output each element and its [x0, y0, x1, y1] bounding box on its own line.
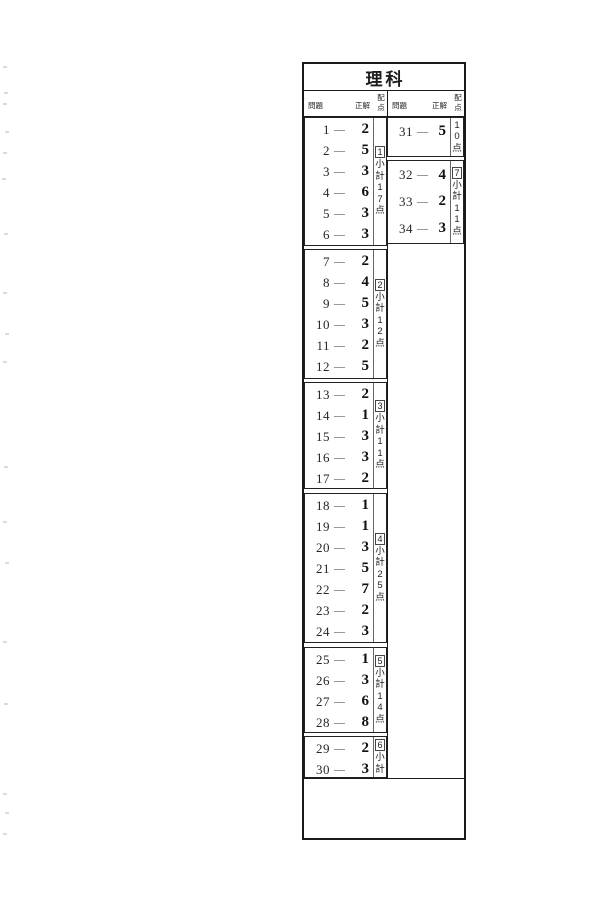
- subtotal-char: 2: [377, 569, 382, 581]
- section-number-box: 5: [375, 655, 385, 667]
- question-number: 18: [305, 498, 330, 514]
- dash-separator: —: [330, 277, 349, 289]
- dash-separator: —: [330, 410, 349, 422]
- answer-section: 7—28—49—510—311—212—52小計12点: [304, 249, 387, 379]
- question-number: 17: [305, 471, 330, 487]
- answer-row: 33—2: [388, 191, 450, 212]
- question-number: 22: [305, 582, 330, 598]
- answer-number: 5: [349, 560, 373, 577]
- answer-number: 2: [432, 193, 450, 210]
- subtotal-char: 点: [375, 459, 385, 471]
- answer-row: 28—8: [305, 712, 373, 733]
- subtotal-char: 計: [452, 191, 462, 203]
- question-number: 11: [305, 338, 330, 354]
- scan-artifact: [5, 333, 9, 335]
- dash-separator: —: [330, 654, 349, 666]
- answer-number: 3: [349, 226, 373, 243]
- answer-number: 3: [349, 428, 373, 445]
- question-number: 21: [305, 561, 330, 577]
- section-rows: 31—5: [388, 118, 450, 156]
- question-number: 2: [305, 143, 330, 159]
- answer-row: 24—3: [305, 621, 373, 642]
- answer-number: 2: [349, 121, 373, 138]
- answer-row: 17—2: [305, 468, 373, 489]
- subtotal-char: 計: [375, 764, 385, 776]
- question-number: 27: [305, 694, 330, 710]
- subtotal-char: 1: [454, 214, 459, 226]
- scan-artifact: [3, 833, 7, 835]
- dash-separator: —: [330, 361, 349, 373]
- answer-section: 29—230—36小計: [304, 736, 387, 778]
- answer-section: 1—22—53—34—65—36—31小計17点: [304, 117, 387, 246]
- answer-row: 7—2: [305, 251, 373, 272]
- dash-separator: —: [413, 169, 432, 181]
- subtotal-char: 小: [375, 413, 385, 425]
- subtotal-char: 点: [375, 338, 385, 350]
- scan-artifact: [4, 92, 8, 94]
- answer-row: 14—1: [305, 405, 373, 426]
- subtotal-char: 1: [377, 182, 382, 194]
- question-number: 3: [305, 164, 330, 180]
- empty-bottom-cell: [304, 778, 464, 838]
- scan-artifact: [5, 562, 9, 564]
- column-header-row: 問題 正解 配点 問題 正解 配点: [304, 91, 464, 117]
- answer-number: 3: [432, 220, 450, 237]
- dash-separator: —: [330, 563, 349, 575]
- table-title-row: 理科: [304, 64, 464, 91]
- section-rows: 29—230—3: [305, 737, 373, 777]
- subtotal-char: 計: [375, 679, 385, 691]
- scan-artifact: [3, 66, 7, 68]
- answer-number: 4: [349, 274, 373, 291]
- subtotal-char: 計: [375, 171, 385, 183]
- points-strip: 1小計17点: [373, 118, 386, 245]
- subtotal-char: 7: [377, 194, 382, 206]
- dash-separator: —: [330, 452, 349, 464]
- answer-section: 25—126—327—628—85小計14点: [304, 647, 387, 733]
- subtotal-char: 点: [375, 592, 385, 604]
- dash-separator: —: [330, 764, 349, 776]
- scan-artifact: [4, 703, 8, 705]
- subtotal-char: 1: [377, 691, 382, 703]
- dash-separator: —: [330, 187, 349, 199]
- section-number-box: 6: [375, 739, 385, 751]
- question-number: 19: [305, 519, 330, 535]
- dash-separator: —: [330, 675, 349, 687]
- answer-row: 29—2: [305, 738, 373, 759]
- dash-separator: —: [330, 389, 349, 401]
- section-number-box: 2: [375, 279, 385, 291]
- question-number: 28: [305, 715, 330, 731]
- answer-number: 6: [349, 693, 373, 710]
- dash-separator: —: [330, 431, 349, 443]
- question-number: 23: [305, 603, 330, 619]
- points-strip: 4小計25点: [373, 494, 386, 642]
- question-number: 7: [305, 254, 330, 270]
- answer-row: 18—1: [305, 495, 373, 516]
- dash-separator: —: [330, 743, 349, 755]
- dash-separator: —: [413, 196, 432, 208]
- question-number: 12: [305, 359, 330, 375]
- section-rows: 32—433—234—3: [388, 161, 450, 243]
- subtotal-char: 計: [375, 425, 385, 437]
- answer-number: 3: [349, 316, 373, 333]
- dash-separator: —: [330, 717, 349, 729]
- subject-title: 理科: [363, 65, 406, 90]
- answer-section: 13—214—115—316—317—23小計11点: [304, 382, 387, 489]
- answer-number: 6: [349, 184, 373, 201]
- points-strip: 5小計14点: [373, 648, 386, 732]
- subtotal-char: 点: [375, 205, 385, 217]
- scan-artifact: [4, 233, 8, 235]
- answer-number: 2: [349, 740, 373, 757]
- question-number: 25: [305, 652, 330, 668]
- question-col-header: 問題: [392, 100, 407, 111]
- answer-number: 1: [349, 497, 373, 514]
- question-number: 4: [305, 185, 330, 201]
- answer-key-table: 理科 問題 正解 配点 問題 正解 配点 1—22—53—34—65—36—31…: [302, 62, 466, 840]
- scan-artifact: [2, 178, 6, 180]
- subtotal-char: 計: [375, 557, 385, 569]
- header-left-half: 問題 正解 配点: [304, 91, 387, 116]
- question-number: 8: [305, 275, 330, 291]
- answer-number: 3: [349, 623, 373, 640]
- points-strip: 10点: [450, 118, 463, 156]
- dash-separator: —: [413, 223, 432, 235]
- section-rows: 18—119—120—321—522—723—224—3: [305, 494, 373, 642]
- dash-separator: —: [330, 696, 349, 708]
- answer-row: 20—3: [305, 537, 373, 558]
- section-rows: 7—28—49—510—311—212—5: [305, 250, 373, 378]
- answer-number: 7: [349, 581, 373, 598]
- answer-section: 31—510点: [387, 117, 464, 157]
- answer-number: 1: [349, 407, 373, 424]
- answer-number: 2: [349, 337, 373, 354]
- question-number: 5: [305, 206, 330, 222]
- dash-separator: —: [330, 542, 349, 554]
- dash-separator: —: [330, 256, 349, 268]
- points-strip: 3小計11点: [373, 383, 386, 488]
- section-number-box: 1: [375, 146, 385, 158]
- answer-row: 21—5: [305, 558, 373, 579]
- section-number-box: 4: [375, 533, 385, 545]
- dash-separator: —: [330, 319, 349, 331]
- points-col-header: 配点: [376, 93, 386, 113]
- subtotal-char: 点: [375, 714, 385, 726]
- dash-separator: —: [413, 126, 432, 138]
- dash-separator: —: [330, 124, 349, 136]
- answer-number: 3: [349, 163, 373, 180]
- scan-artifact: [3, 793, 7, 795]
- subtotal-char: 小: [452, 180, 462, 192]
- empty-right-cell: [387, 244, 464, 778]
- subtotal-char: 小: [375, 546, 385, 558]
- section-rows: 13—214—115—316—317—2: [305, 383, 373, 488]
- subtotal-char: 点: [452, 143, 462, 155]
- dash-separator: —: [330, 584, 349, 596]
- subtotal-char: 1: [377, 448, 382, 460]
- answer-number: 2: [349, 602, 373, 619]
- question-number: 29: [305, 741, 330, 757]
- section-number-box: 3: [375, 400, 385, 412]
- points-strip: 2小計12点: [373, 250, 386, 378]
- answer-number: 5: [432, 123, 450, 140]
- answer-row: 11—2: [305, 335, 373, 356]
- answer-number: 2: [349, 386, 373, 403]
- dash-separator: —: [330, 208, 349, 220]
- section-rows: 1—22—53—34—65—36—3: [305, 118, 373, 245]
- answer-col-header: 正解: [355, 100, 370, 111]
- question-number: 32: [388, 167, 413, 183]
- answer-row: 1—2: [305, 119, 373, 140]
- question-number: 6: [305, 227, 330, 243]
- answer-row: 19—1: [305, 516, 373, 537]
- subtotal-char: 1: [377, 315, 382, 327]
- points-strip: 7小計11点: [450, 161, 463, 243]
- answer-row: 32—4: [388, 165, 450, 186]
- subtotal-char: 小: [375, 668, 385, 680]
- subtotal-char: 1: [454, 120, 459, 132]
- subtotal-char: 1: [454, 203, 459, 215]
- answer-row: 10—3: [305, 314, 373, 335]
- answer-number: 2: [349, 470, 373, 487]
- dash-separator: —: [330, 605, 349, 617]
- dash-separator: —: [330, 340, 349, 352]
- answer-number: 2: [349, 253, 373, 270]
- scan-artifact: [3, 521, 7, 523]
- scan-artifact: [5, 131, 9, 133]
- question-number: 10: [305, 317, 330, 333]
- question-number: 30: [305, 762, 330, 778]
- answer-row: 12—5: [305, 356, 373, 377]
- answer-row: 26—3: [305, 670, 373, 691]
- header-right-half: 問題 正解 配点: [387, 91, 464, 116]
- question-number: 16: [305, 450, 330, 466]
- points-strip: 6小計: [373, 737, 386, 777]
- answer-row: 30—3: [305, 759, 373, 780]
- dash-separator: —: [330, 166, 349, 178]
- question-number: 15: [305, 429, 330, 445]
- question-number: 34: [388, 221, 413, 237]
- answer-number: 3: [349, 672, 373, 689]
- answer-number: 4: [432, 167, 450, 184]
- answer-number: 5: [349, 142, 373, 159]
- dash-separator: —: [330, 473, 349, 485]
- section-rows: 25—126—327—628—8: [305, 648, 373, 732]
- scan-artifact: [5, 812, 9, 814]
- subtotal-char: 0: [454, 131, 459, 143]
- answer-row: 3—3: [305, 161, 373, 182]
- question-number: 9: [305, 296, 330, 312]
- scan-artifact: [4, 466, 8, 468]
- subtotal-char: 小: [375, 292, 385, 304]
- points-col-header: 配点: [453, 93, 463, 113]
- dash-separator: —: [330, 145, 349, 157]
- dash-separator: —: [330, 626, 349, 638]
- scanned-answer-sheet: 理科 問題 正解 配点 問題 正解 配点 1—22—53—34—65—36—31…: [0, 0, 600, 900]
- answer-row: 4—6: [305, 182, 373, 203]
- question-col-header: 問題: [308, 100, 323, 111]
- dash-separator: —: [330, 298, 349, 310]
- subtotal-char: 1: [377, 436, 382, 448]
- answer-row: 34—3: [388, 218, 450, 239]
- answer-section: 32—433—234—37小計11点: [387, 160, 464, 244]
- answer-row: 9—5: [305, 293, 373, 314]
- answer-row: 13—2: [305, 384, 373, 405]
- answer-number: 1: [349, 518, 373, 535]
- answer-row: 23—2: [305, 600, 373, 621]
- scan-artifact: [3, 152, 7, 154]
- answer-row: 8—4: [305, 272, 373, 293]
- answer-row: 27—6: [305, 691, 373, 712]
- question-number: 26: [305, 673, 330, 689]
- scan-artifact: [3, 641, 7, 643]
- answer-row: 15—3: [305, 426, 373, 447]
- dash-separator: —: [330, 521, 349, 533]
- subtotal-char: 2: [377, 326, 382, 338]
- subtotal-char: 点: [452, 226, 462, 238]
- question-number: 33: [388, 194, 413, 210]
- section-number-box: 7: [452, 167, 462, 179]
- answer-row: 25—1: [305, 649, 373, 670]
- scan-artifact: [3, 103, 7, 105]
- answer-number: 3: [349, 449, 373, 466]
- subtotal-char: 4: [377, 702, 382, 714]
- question-number: 13: [305, 387, 330, 403]
- answer-number: 3: [349, 205, 373, 222]
- answer-row: 31—5: [388, 121, 450, 142]
- answer-number: 5: [349, 358, 373, 375]
- answer-row: 5—3: [305, 203, 373, 224]
- answer-col-header: 正解: [432, 100, 447, 111]
- question-number: 31: [388, 124, 413, 140]
- subtotal-char: 計: [375, 303, 385, 315]
- dash-separator: —: [330, 229, 349, 241]
- subtotal-char: 5: [377, 580, 382, 592]
- answer-number: 8: [349, 714, 373, 731]
- subtotal-char: 小: [375, 752, 385, 764]
- answer-section: 18—119—120—321—522—723—224—34小計25点: [304, 493, 387, 643]
- dash-separator: —: [330, 500, 349, 512]
- answer-number: 3: [349, 761, 373, 778]
- subtotal-char: 小: [375, 159, 385, 171]
- scan-artifact: [3, 292, 7, 294]
- answer-number: 5: [349, 295, 373, 312]
- question-number: 24: [305, 624, 330, 640]
- answer-number: 3: [349, 539, 373, 556]
- answer-row: 22—7: [305, 579, 373, 600]
- answer-row: 6—3: [305, 224, 373, 245]
- question-number: 20: [305, 540, 330, 556]
- scan-artifact: [3, 361, 7, 363]
- answer-number: 1: [349, 651, 373, 668]
- question-number: 14: [305, 408, 330, 424]
- answer-row: 16—3: [305, 447, 373, 468]
- question-number: 1: [305, 122, 330, 138]
- answer-row: 2—5: [305, 140, 373, 161]
